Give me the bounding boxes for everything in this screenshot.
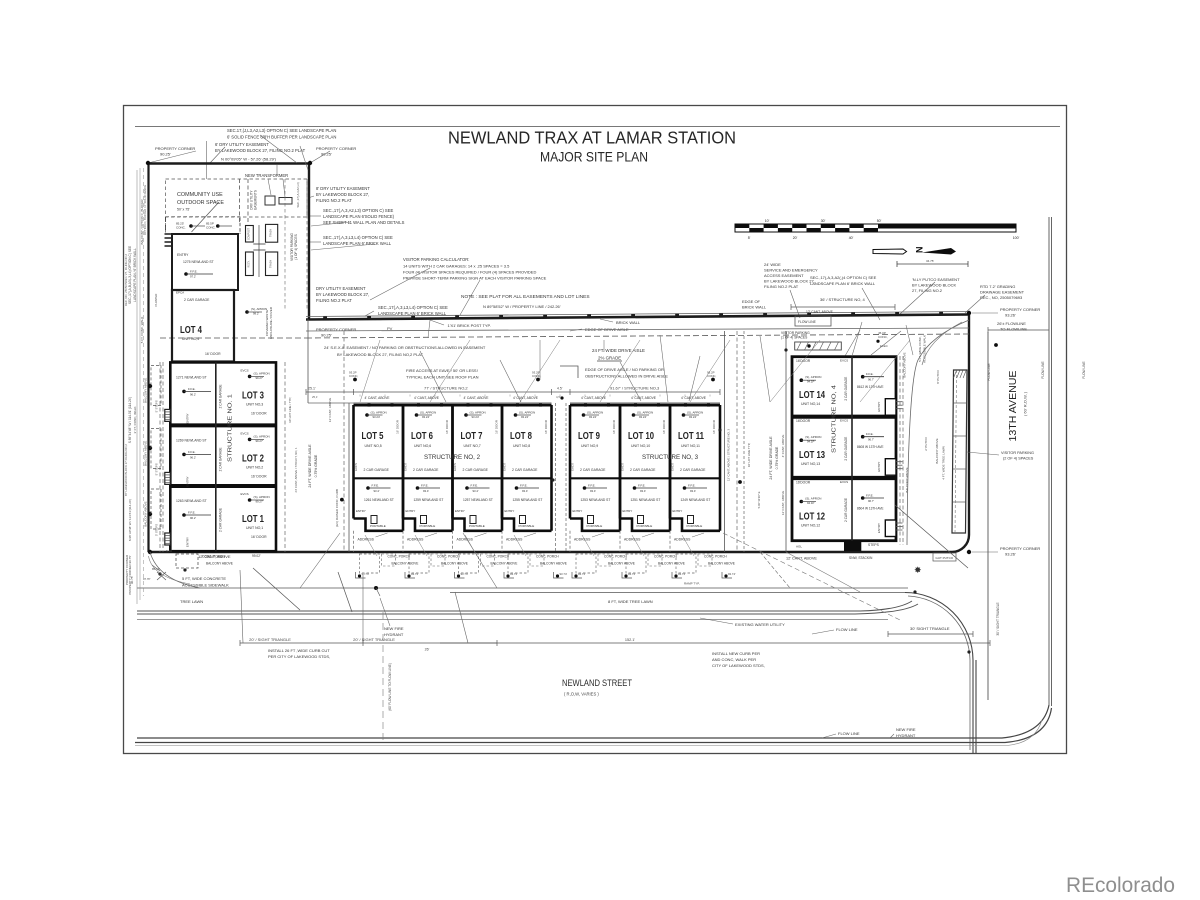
svg-text:BALCONY ABOVE: BALCONY ABOVE — [708, 562, 735, 566]
svg-text:BY LAKEWOOD BLOCK 27,: BY LAKEWOOD BLOCK 27, — [316, 292, 369, 297]
svg-text:2 CAR GARAGE: 2 CAR GARAGE — [219, 508, 223, 532]
svg-text:UNIT NO,12: UNIT NO,12 — [801, 524, 820, 528]
svg-text:S 89°44'48" W / 114.51' (114: S 89°44'48" W / 114.51' (114.24') — [128, 397, 132, 443]
svg-text:30' / SIGHT TRIANGLE: 30' / SIGHT TRIANGLE — [996, 602, 1000, 635]
svg-text:VISITOR PARKING CALCULATOR:: VISITOR PARKING CALCULATOR: — [403, 257, 469, 262]
svg-text:0.75% GRADE: 0.75% GRADE — [314, 454, 318, 477]
svg-text:(S), APRON: (S), APRON — [254, 434, 270, 438]
svg-text:93.24': 93.24' — [472, 415, 480, 419]
svg-text:93.4': 93.4' — [374, 489, 380, 493]
svg-text:UNIT NO,1: UNIT NO,1 — [246, 526, 263, 530]
svg-text:50' x 75': 50' x 75' — [177, 208, 190, 212]
svg-text:16' DOOR: 16' DOOR — [251, 535, 267, 539]
svg-text:ENTRY: ENTRY — [356, 509, 366, 513]
svg-text:(S), APRON: (S), APRON — [371, 411, 387, 415]
svg-text:LANDSCAPE PLAN / 6' BRICK WAL: LANDSCAPE PLAN / 6' BRICK WALL — [133, 248, 137, 302]
svg-text:F.F.E.: F.F.E. — [188, 511, 196, 515]
svg-text:VISITOR PARKING: VISITOR PARKING — [1001, 451, 1034, 455]
svg-text:96.2': 96.2' — [190, 516, 196, 520]
svg-text:LOT 6: LOT 6 — [411, 431, 433, 442]
svg-text:PER CITY OF LAKEWOOD STDS,: PER CITY OF LAKEWOOD STDS, — [268, 654, 330, 659]
svg-text:LOT 5: LOT 5 — [362, 431, 384, 442]
svg-text:LOT 9: LOT 9 — [578, 431, 600, 442]
svg-text:96.7': 96.7' — [868, 438, 874, 442]
svg-text:1255 NEWLAND ST: 1255 NEWLAND ST — [513, 498, 543, 502]
svg-text:STRUCTURE NO, 3: STRUCTURE NO, 3 — [642, 454, 699, 461]
svg-text:24 FT, WIDE DRIVE AISLE: 24 FT, WIDE DRIVE AISLE — [308, 444, 312, 488]
svg-text:1251 NEWLAND ST: 1251 NEWLAND ST — [631, 498, 661, 502]
svg-text:UNIT NO,4: UNIT NO,4 — [182, 337, 199, 341]
svg-text:1261 NEWLAND ST: 1261 NEWLAND ST — [364, 498, 394, 502]
svg-text:ENTRY: ENTRY — [673, 509, 683, 513]
svg-text:ACCESSIBLE SIDEWALK: ACCESSIBLE SIDEWALK — [182, 583, 229, 588]
svg-text:RTD 7.2' GRADING: RTD 7.2' GRADING — [980, 284, 1015, 289]
svg-text:BY LAKEWOOD BLOCK 27,: BY LAKEWOOD BLOCK 27, — [764, 279, 815, 284]
svg-text:96.2': 96.2' — [190, 455, 196, 459]
svg-text:STRUCTURE NO. 1: STRUCTURE NO. 1 — [228, 394, 234, 462]
svg-text:ENTRY: ENTRY — [186, 476, 190, 486]
svg-text:PORTABLE: PORTABLE — [420, 524, 436, 528]
svg-text:PLANTER: PLANTER — [154, 294, 158, 307]
svg-text:FLOW LINE: FLOW LINE — [838, 731, 860, 736]
svg-text:ADDRESS: ADDRESS — [574, 538, 591, 542]
svg-text:93.4': 93.4' — [522, 489, 528, 493]
svg-text:5' STEPS: 5' STEPS — [155, 524, 159, 536]
svg-text:GUT PUTCO: GUT PUTCO — [936, 556, 954, 560]
svg-text:(S), APRON: (S), APRON — [805, 497, 821, 501]
svg-text:24' WIDE: 24' WIDE — [764, 262, 781, 267]
svg-text:2 CAR GARAGE: 2 CAR GARAGE — [680, 468, 706, 472]
svg-text:12' CANT, ABOVE: 12' CANT, ABOVE — [786, 557, 817, 561]
svg-text:BY LAKEWOOD BLOCK 27,: BY LAKEWOOD BLOCK 27, — [316, 192, 369, 197]
svg-text:5': 5' — [748, 236, 751, 240]
svg-text:(EV) RAISED CONC, CURB: (EV) RAISED CONC, CURB — [335, 489, 339, 527]
svg-text:ENTRY: ENTRY — [406, 509, 416, 513]
svg-text:93.24': 93.24' — [373, 415, 381, 419]
svg-text:VISITOR PARKING: VISITOR PARKING — [781, 331, 810, 335]
svg-text:93.74': 93.74' — [461, 572, 469, 576]
svg-text:SEC.,17(,A,3,L3,L4) OPTION C): SEC.,17(,A,3,L3,L4) OPTION C) SEE — [378, 305, 448, 310]
svg-text:(S), APRON: (S), APRON — [687, 411, 703, 415]
svg-text:2 CAR GARAGE: 2 CAR GARAGE — [219, 447, 223, 471]
svg-text:ENTRY: ENTRY — [455, 509, 465, 513]
svg-text:STRUCTURE NO, 4: STRUCTURE NO, 4 — [832, 385, 838, 453]
svg-text:30' SIGHT TRIANGLE: 30' SIGHT TRIANGLE — [910, 626, 950, 631]
svg-text:1249 NEWLAND ST: 1249 NEWLAND ST — [681, 498, 711, 502]
svg-text:90.75': 90.75' — [130, 576, 134, 585]
svg-text:ADDRESS: ADDRESS — [407, 538, 424, 542]
svg-text:0.75% GRADE: 0.75% GRADE — [775, 446, 779, 469]
svg-text:4' CANT, ABOVE: 4' CANT, ABOVE — [365, 396, 391, 400]
svg-text:SEC.17,(J,L3,A2,L3) OPTION C): SEC.17,(J,L3,A2,L3) OPTION C) SEE LANDSC… — [227, 128, 336, 133]
svg-text:14 UNITS WITH 2 CAR GARAGES:: 14 UNITS WITH 2 CAR GARAGES: 14 x .25 SP… — [403, 264, 510, 269]
svg-text:EVCS: EVCS — [840, 419, 848, 423]
svg-text:CONC,: CONC, — [349, 374, 359, 378]
svg-text:40': 40' — [849, 236, 854, 240]
svg-text:ADDRESS: ADDRESS — [457, 538, 474, 542]
svg-text:PORTABLE: PORTABLE — [370, 524, 386, 528]
svg-text:16' DOOR: 16' DOOR — [445, 419, 449, 434]
svg-text:ENTRY: ENTRY — [186, 413, 190, 423]
svg-text:16' DOOR: 16' DOOR — [251, 474, 267, 478]
svg-text:1259 NEWLAND ST: 1259 NEWLAND ST — [414, 498, 444, 502]
svg-text:UNIT NO,5: UNIT NO,5 — [365, 444, 382, 448]
svg-text:SEC.,17(,A,3,A2,L3): SEC.,17(,A,3,A2,L3) — [296, 182, 300, 207]
svg-text:93.26': 93.26' — [1005, 552, 1016, 557]
svg-text:ADDRESS: ADDRESS — [506, 538, 523, 542]
svg-text:34.75': 34.75' — [926, 259, 935, 263]
svg-text:4' CANT, ABOVE: 4' CANT, ABOVE — [414, 396, 440, 400]
svg-text:93.74': 93.74' — [362, 572, 370, 576]
svg-text:PORTABLE: PORTABLE — [519, 524, 535, 528]
svg-text:F.F.E.: F.F.E. — [866, 432, 874, 436]
svg-text:(S), APRON: (S), APRON — [519, 411, 535, 415]
svg-text:90.25': 90.25' — [160, 152, 171, 157]
svg-text:FILING NO.2 PLAT: FILING NO.2 PLAT — [316, 198, 352, 203]
svg-text:50': 50' — [877, 219, 882, 223]
svg-text:5' STEPS: 5' STEPS — [155, 463, 159, 475]
svg-text:16' DOOR: 16' DOOR — [544, 419, 548, 434]
svg-text:97.2': 97.2' — [190, 275, 196, 279]
svg-text:EDGE OF DRIVE AISLE / NO PARKI: EDGE OF DRIVE AISLE / NO PARKING OR — [585, 367, 664, 372]
svg-text:(S), APRON: (S), APRON — [637, 411, 653, 415]
svg-text:FLOW LINE: FLOW LINE — [1041, 361, 1045, 378]
svg-text:10' LOT LINE / TYP,: 10' LOT LINE / TYP, — [288, 397, 292, 423]
svg-text:CONC.: CONC. — [206, 226, 216, 230]
svg-text:(2 OF 4) SPACES: (2 OF 4) SPACES — [1003, 457, 1034, 461]
svg-text:2% GRADE: 2% GRADE — [598, 356, 621, 361]
svg-text:F.F.E.: F.F.E. — [471, 484, 479, 488]
svg-text:8608 W 13TH AVE: 8608 W 13TH AVE — [857, 445, 884, 449]
svg-text:ENTRY: ENTRY — [877, 523, 881, 533]
svg-text:( 60' R,O,W, ): ( 60' R,O,W, ) — [1023, 391, 1028, 416]
svg-text:16' DOOR: 16' DOOR — [495, 419, 499, 434]
svg-text:2 CAR GARAGE: 2 CAR GARAGE — [580, 468, 606, 472]
svg-text:BY LAKEWOOD BLOCK: BY LAKEWOOD BLOCK — [912, 283, 956, 288]
svg-text:BALCONY ABOVE: BALCONY ABOVE — [540, 562, 567, 566]
svg-text:EDGE OF: EDGE OF — [742, 299, 761, 304]
svg-text:PROPERTY CORNER: PROPERTY CORNER — [1000, 307, 1040, 312]
svg-text:SNW, STACKIN: SNW, STACKIN — [849, 556, 873, 560]
svg-text:16' DOOR: 16' DOOR — [251, 411, 267, 415]
svg-text:F.F.E.: F.F.E. — [188, 450, 196, 454]
svg-text:DRY UTILITY EASEMENT: DRY UTILITY EASEMENT — [316, 286, 366, 291]
svg-text:4 FT, WIDE TREE LAWN: 4 FT, WIDE TREE LAWN — [942, 446, 946, 480]
svg-text:COMPOST: COMPOST — [248, 227, 251, 240]
svg-text:2 CAR GARAGE: 2 CAR GARAGE — [413, 468, 439, 472]
svg-text:13TH AVENUE: 13TH AVENUE — [1008, 370, 1019, 441]
svg-text:1263 NEWLAND ST: 1263 NEWLAND ST — [176, 499, 207, 503]
svg-text:5 FT, WIDE CONCRETE: 5 FT, WIDE CONCRETE — [182, 576, 226, 581]
svg-text:PROPERTY CORNER: PROPERTY CORNER — [1000, 546, 1040, 551]
svg-text:93.74': 93.74' — [411, 572, 419, 576]
svg-text:SEE SHEET 11 WALL PLAN AND DET: SEE SHEET 11 WALL PLAN AND DETAILS — [323, 220, 405, 225]
svg-text:CONC, PORCH: CONC, PORCH — [437, 555, 460, 559]
svg-text:8' PUTCO: 8' PUTCO — [936, 370, 940, 384]
svg-text:1271 NEWLAND ST: 1271 NEWLAND ST — [176, 375, 207, 379]
svg-text:FIRE ACCESS AT EAVE / 50' OR L: FIRE ACCESS AT EAVE / 50' OR LESS! — [406, 368, 478, 373]
svg-text:PORTABLE: PORTABLE — [637, 524, 653, 528]
svg-text:93.24': 93.24' — [639, 415, 647, 419]
svg-text:BALCONY ABOVE: BALCONY ABOVE — [491, 562, 518, 566]
svg-text:EVCS: EVCS — [453, 463, 457, 471]
svg-text:LOT 13: LOT 13 — [799, 450, 825, 461]
svg-text:16' DOOR: 16' DOOR — [612, 419, 616, 434]
svg-text:DRAINAGE EASEMENT: DRAINAGE EASEMENT — [980, 290, 1025, 295]
svg-text:1275 NEWLAND ST: 1275 NEWLAND ST — [183, 260, 214, 264]
svg-text:NEWLAND TRAX AT LAMAR STATION: NEWLAND TRAX AT LAMAR STATION — [448, 128, 736, 148]
svg-text:BY LAKEWOOD BLOCK 27, FILING N: BY LAKEWOOD BLOCK 27, FILING NO,2 PLAT — [337, 352, 424, 357]
svg-text:2 CAR GARAGE: 2 CAR GARAGE — [844, 437, 848, 461]
svg-text:TRASH: TRASH — [270, 229, 273, 237]
svg-text:EXISTING WATER UTILITY: EXISTING WATER UTILITY — [735, 622, 785, 627]
svg-text:100': 100' — [1013, 236, 1020, 240]
svg-text:CONC, PORCH: CONC, PORCH — [704, 555, 727, 559]
svg-text:93.74': 93.74' — [628, 572, 636, 576]
svg-text:UNIT NO,9: UNIT NO,9 — [581, 444, 598, 448]
svg-text:93.74': 93.74' — [510, 572, 518, 576]
svg-text:LOT 2: LOT 2 — [242, 453, 264, 464]
svg-text:36' / STRUCTURE NO, 4: 36' / STRUCTURE NO, 4 — [820, 297, 866, 302]
svg-text:F.F.E.: F.F.E. — [520, 484, 528, 488]
svg-text:ENTRY: ENTRY — [623, 509, 633, 513]
svg-text:(S), APRON: (S), APRON — [587, 411, 603, 415]
svg-text:LANDSCAPE PLAN 6' BRICK WALL: LANDSCAPE PLAN 6' BRICK WALL — [323, 241, 392, 246]
svg-text:PROPERTY CORNER: PROPERTY CORNER — [155, 146, 195, 151]
svg-text:152.1': 152.1' — [625, 638, 636, 642]
svg-text:2 CAR GARAGE: 2 CAR GARAGE — [844, 498, 848, 522]
svg-text:3' FT, CONC, WALK: 3' FT, CONC, WALK — [133, 407, 137, 434]
svg-text:(60' FLOW LINE TO FLOW LINE): (60' FLOW LINE TO FLOW LINE) — [388, 663, 392, 711]
svg-text:RAMP TYP,: RAMP TYP, — [684, 582, 700, 586]
svg-text:NEW FIRE: NEW FIRE — [384, 626, 404, 631]
svg-text:LOT 4: LOT 4 — [180, 325, 202, 336]
svg-text:93.74': 93.74' — [678, 572, 686, 576]
svg-text:✸: ✸ — [914, 565, 922, 575]
svg-text:UNIT NO,6: UNIT NO,6 — [414, 444, 431, 448]
svg-text:ENTRY: ENTRY — [505, 509, 515, 513]
svg-text:12' CANT, ABOVE: 12' CANT, ABOVE — [328, 398, 332, 422]
svg-text:BALCONY ABOVE: BALCONY ABOVE — [935, 438, 939, 463]
svg-text:(1 OF 4) SPACES: (1 OF 4) SPACES — [294, 234, 298, 259]
svg-text:EPCA: EPCA — [176, 291, 184, 295]
svg-text:2 CAR GARAGE: 2 CAR GARAGE — [364, 468, 390, 472]
svg-text:20' / SIGHT TRIANGLE: 20' / SIGHT TRIANGLE — [249, 637, 291, 642]
svg-text:UNIT NO,13: UNIT NO,13 — [801, 462, 820, 466]
svg-text:EVCS: EVCS — [840, 359, 848, 363]
svg-text:CONC, PORCH: CONC, PORCH — [202, 555, 225, 559]
svg-text:OPTION C, BUFFER / 6' SOLID FE: OPTION C, BUFFER / 6' SOLID FENCE — [143, 185, 147, 235]
svg-text:FLOW LINE: FLOW LINE — [836, 627, 858, 632]
svg-text:25,1': 25,1' — [312, 395, 318, 399]
svg-text:F.F.E.: F.F.E. — [638, 484, 646, 488]
svg-text:UNIT NO,11: UNIT NO,11 — [681, 444, 700, 448]
svg-text:UNIT NO,3: UNIT NO,3 — [246, 402, 263, 406]
svg-text:93.74': 93.74' — [728, 572, 736, 576]
svg-text:16' DOOR: 16' DOOR — [396, 419, 400, 434]
svg-text:30': 30' — [821, 219, 826, 223]
svg-text:26'± FLOWLINE: 26'± FLOWLINE — [997, 321, 1026, 326]
svg-text:1269 NEWLAND ST: 1269 NEWLAND ST — [176, 438, 207, 442]
svg-text:EVCS: EVCS — [621, 463, 625, 471]
svg-text:FLOW LINE: FLOW LINE — [1082, 361, 1086, 378]
svg-text:12' CANT, ABOVE / STRUCTURE NO: 12' CANT, ABOVE / STRUCTURE NO, 3 — [727, 429, 731, 482]
svg-text:1257 NEWLAND ST: 1257 NEWLAND ST — [463, 498, 493, 502]
svg-text:REcolorado: REcolorado — [1066, 874, 1175, 897]
svg-text:4' CANT, ABOVE: 4' CANT, ABOVE — [464, 396, 490, 400]
svg-text:CONC, PORCH: CONC, PORCH — [388, 555, 411, 559]
svg-text:UNIT NO,10: UNIT NO,10 — [631, 444, 650, 448]
svg-text:93.74': 93.74' — [560, 572, 568, 576]
svg-text:24' CANT, ABOVE / STRUCT, NO,: 24' CANT, ABOVE / STRUCT, NO, 1 — [294, 447, 298, 492]
svg-text:EVCS: EVCS — [241, 492, 249, 496]
svg-text:CONC, PORCH: CONC, PORCH — [487, 555, 510, 559]
svg-text:CONC,: CONC, — [707, 374, 717, 378]
svg-text:93.4': 93.4' — [690, 489, 696, 493]
svg-text:CONC, PORCH: CONC, PORCH — [654, 555, 677, 559]
svg-text:ENTRY: ENTRY — [573, 509, 583, 513]
svg-text:4' CANT, ABOVE: 4' CANT, ABOVE — [513, 396, 539, 400]
svg-text:6' DRY UTILITY EASEMENT: 6' DRY UTILITY EASEMENT — [215, 142, 269, 147]
svg-text:ENTRY: ENTRY — [177, 253, 189, 257]
svg-text:(S), APRON: (S), APRON — [805, 375, 821, 379]
svg-text:ENCLOSURE / COVER: ENCLOSURE / COVER — [269, 306, 273, 339]
svg-text:F.F.E.: F.F.E. — [188, 387, 196, 391]
svg-text:(S), APRON: (S), APRON — [251, 307, 267, 311]
svg-text:MAJOR SITE PLAN: MAJOR SITE PLAN — [540, 150, 648, 165]
svg-text:1253 NEWLAND ST: 1253 NEWLAND ST — [581, 498, 611, 502]
svg-text:SEC.,17(,A,3,A2,L3) OPTION C): SEC.,17(,A,3,A2,L3) OPTION C) SEE — [323, 208, 393, 213]
svg-text:8' DRY UTILITY EASEMENT: 8' DRY UTILITY EASEMENT — [316, 186, 370, 191]
svg-text:CONC,: CONC, — [878, 335, 888, 339]
svg-text:ADDRESS: ADDRESS — [674, 538, 691, 542]
svg-text:BALCONY ABOVE: BALCONY ABOVE — [658, 562, 685, 566]
svg-text:BALCONY ABOVE: BALCONY ABOVE — [392, 562, 419, 566]
svg-text:BRICK WALL: BRICK WALL — [616, 320, 641, 325]
svg-text:EVCS: EVCS — [503, 463, 507, 471]
svg-text:TYPICAL EACH UNIT SEE ROOF PLA: TYPICAL EACH UNIT SEE ROOF PLAN — [406, 375, 479, 380]
svg-text:2' PUTCO: 2' PUTCO — [924, 437, 928, 451]
svg-text:LOT 12: LOT 12 — [799, 512, 825, 523]
svg-text:PROPERTY CORNER: PROPERTY CORNER — [125, 554, 129, 585]
svg-text:4.5': 4.5' — [557, 387, 563, 391]
svg-text:93.26': 93.26' — [1005, 313, 1016, 318]
svg-text:HYDRANT: HYDRANT — [896, 733, 916, 738]
svg-text:PORTABLE: PORTABLE — [687, 524, 703, 528]
svg-text:AGL: AGL — [796, 545, 802, 549]
svg-text:12' CANT, ABOVE: 12' CANT, ABOVE — [806, 310, 834, 314]
svg-text:24 FT. WIDE DRIVE AISLE: 24 FT. WIDE DRIVE AISLE — [592, 348, 645, 353]
svg-text:16'DOOR: 16'DOOR — [796, 359, 811, 363]
svg-text:OUTDOOR SPACE: OUTDOOR SPACE — [177, 200, 224, 206]
svg-text:4' CANT, ABOVE: 4' CANT, ABOVE — [581, 396, 607, 400]
svg-text:N 00°09'05" W - 57.26' (58.29': N 00°09'05" W - 57.26' (58.29') — [221, 157, 277, 162]
svg-text:2 CAR GARAGE: 2 CAR GARAGE — [512, 468, 538, 472]
svg-text:F.F.E.: F.F.E. — [190, 270, 198, 274]
svg-text:16' DOOR: 16' DOOR — [662, 419, 666, 434]
svg-text:TREE LAWN: TREE LAWN — [180, 599, 203, 604]
svg-text:CONC, PORCH: CONC, PORCH — [536, 555, 559, 559]
svg-text:EVCS: EVCS — [354, 463, 358, 471]
svg-text:4' CANT, ABOVE: 4' CANT, ABOVE — [781, 435, 785, 458]
svg-text:CITY OF LAKEWOOD STDS,: CITY OF LAKEWOOD STDS, — [712, 663, 765, 668]
svg-text:TRASH: TRASH — [270, 260, 273, 268]
svg-text:26': 26' — [425, 648, 430, 652]
svg-text:SEC.,17(,A,3,A2(,)4 OPTION C): SEC.,17(,A,3,A2(,)4 OPTION C) SEE — [810, 275, 877, 280]
svg-text:93.74': 93.74' — [578, 572, 586, 576]
svg-text:UNIT NO,7: UNIT NO,7 — [464, 444, 481, 448]
svg-text:(S), APRON: (S), APRON — [420, 411, 436, 415]
svg-text:EVCS: EVCS — [840, 480, 848, 484]
svg-text:BALCONY ABOVE: BALCONY ABOVE — [608, 562, 635, 566]
svg-text:BY LAKEWOOD BLOCK 27, FILING N: BY LAKEWOOD BLOCK 27, FILING NO.2 PLAT — [215, 148, 306, 153]
svg-text:LOT 10: LOT 10 — [628, 431, 654, 442]
svg-text:ENTRY: ENTRY — [186, 537, 190, 547]
svg-text:SEC.,17(,A,B,A3,L3,L4) OPTION: SEC.,17(,A,B,A3,L3,L4) OPTION C) SEE — [128, 246, 132, 304]
svg-text:LANDSCAPE PLAN 6'SOLID FENCE): LANDSCAPE PLAN 6'SOLID FENCE) — [323, 214, 395, 219]
svg-text:(S), APRON: (S), APRON — [254, 495, 270, 499]
svg-text:LOT 7: LOT 7 — [461, 431, 483, 442]
svg-text:16'DOOR: 16'DOOR — [796, 419, 811, 423]
svg-text:EVCS: EVCS — [571, 463, 575, 471]
svg-text:PROPERTY CORNER: PROPERTY CORNER — [316, 146, 356, 151]
svg-text:EVCS: EVCS — [404, 463, 408, 471]
svg-text:F.F.E.: F.F.E. — [421, 484, 429, 488]
svg-text:NEW TRANSFORMER: NEW TRANSFORMER — [245, 173, 288, 178]
svg-text:2 CAR GARAGE: 2 CAR GARAGE — [463, 468, 489, 472]
svg-text:ACCESS EASEMENT: ACCESS EASEMENT — [764, 273, 804, 278]
svg-text:(S), APRON: (S), APRON — [470, 411, 486, 415]
svg-text:INSTALL 26 FT ,WIDE CURB CUT: INSTALL 26 FT ,WIDE CURB CUT — [268, 648, 330, 653]
svg-text:F.F.E.: F.F.E. — [588, 484, 596, 488]
svg-text:93.4': 93.4' — [473, 489, 479, 493]
svg-text:N: N — [914, 247, 924, 254]
svg-text:UNIT NO,2: UNIT NO,2 — [246, 465, 263, 469]
svg-text:4' CANT, ABOVE: 4' CANT, ABOVE — [681, 396, 707, 400]
svg-text:(1 OF 4) SPACES: (1 OF 4) SPACES — [781, 336, 808, 340]
svg-text:ENTRY: ENTRY — [877, 462, 881, 472]
svg-text:F.F.E.: F.F.E. — [688, 484, 696, 488]
svg-text:BALCONY ABOVE: BALCONY ABOVE — [144, 501, 148, 526]
svg-text:ENTRY: ENTRY — [877, 402, 881, 412]
svg-text:24 FT, WIDE DRIVE AISLE: 24 FT, WIDE DRIVE AISLE — [769, 436, 773, 480]
svg-text:16'DOOR: 16'DOOR — [796, 481, 811, 485]
svg-text:BALCONY ABOVE: BALCONY ABOVE — [441, 562, 468, 566]
svg-text:8604 W 13TH AVE: 8604 W 13TH AVE — [857, 507, 884, 511]
svg-text:STEPS: STEPS — [868, 543, 880, 547]
svg-text:LOT 1: LOT 1 — [242, 514, 264, 525]
svg-text:90.25': 90.25' — [321, 333, 332, 338]
svg-text:LOT 3: LOT 3 — [242, 390, 264, 401]
svg-text:SEC.,17(,A,3,L3,L4) OPTION C): SEC.,17(,A,3,L3,L4) OPTION C) SEE — [323, 235, 393, 240]
svg-text:RECY.: RECY. — [248, 260, 251, 267]
svg-text:93.24': 93.24' — [422, 415, 430, 419]
svg-text:S 00°11'30" E: S 00°11'30" E — [757, 491, 761, 508]
svg-text:LANDSCAPE PLAN 6' BRICK WALL: LANDSCAPE PLAN 6' BRICK WALL — [810, 281, 876, 286]
svg-text:10' LOT LINE TYP,: 10' LOT LINE TYP, — [747, 443, 751, 467]
svg-text:93.24': 93.24' — [589, 415, 597, 419]
svg-text:EVCS: EVCS — [241, 368, 249, 372]
svg-text:ADDRESS: ADDRESS — [624, 538, 641, 542]
svg-text:REC, NO, 2505079693 / 27, FILI: REC, NO, 2505079693 / 27, FILING NO,2 — [124, 254, 128, 307]
svg-text:LOT 8: LOT 8 — [510, 431, 532, 442]
svg-text:AND CONC, WALK PER: AND CONC, WALK PER — [712, 657, 756, 662]
svg-text:( R,O,W, VARIES ): ( R,O,W, VARIES ) — [564, 692, 599, 697]
svg-text:ACCESSIBLE WALK: ACCESSIBLE WALK — [923, 335, 927, 363]
svg-text:PROVIDE SHORT-TERM PARKING SIG: PROVIDE SHORT-TERM PARKING SIGN AT EACH … — [403, 276, 547, 281]
svg-text:LOT 11: LOT 11 — [678, 431, 704, 442]
svg-text:BY LAKEWOOD BLOCK 27 FILING NO: BY LAKEWOOD BLOCK 27 FILING NO,2 — [124, 444, 128, 496]
